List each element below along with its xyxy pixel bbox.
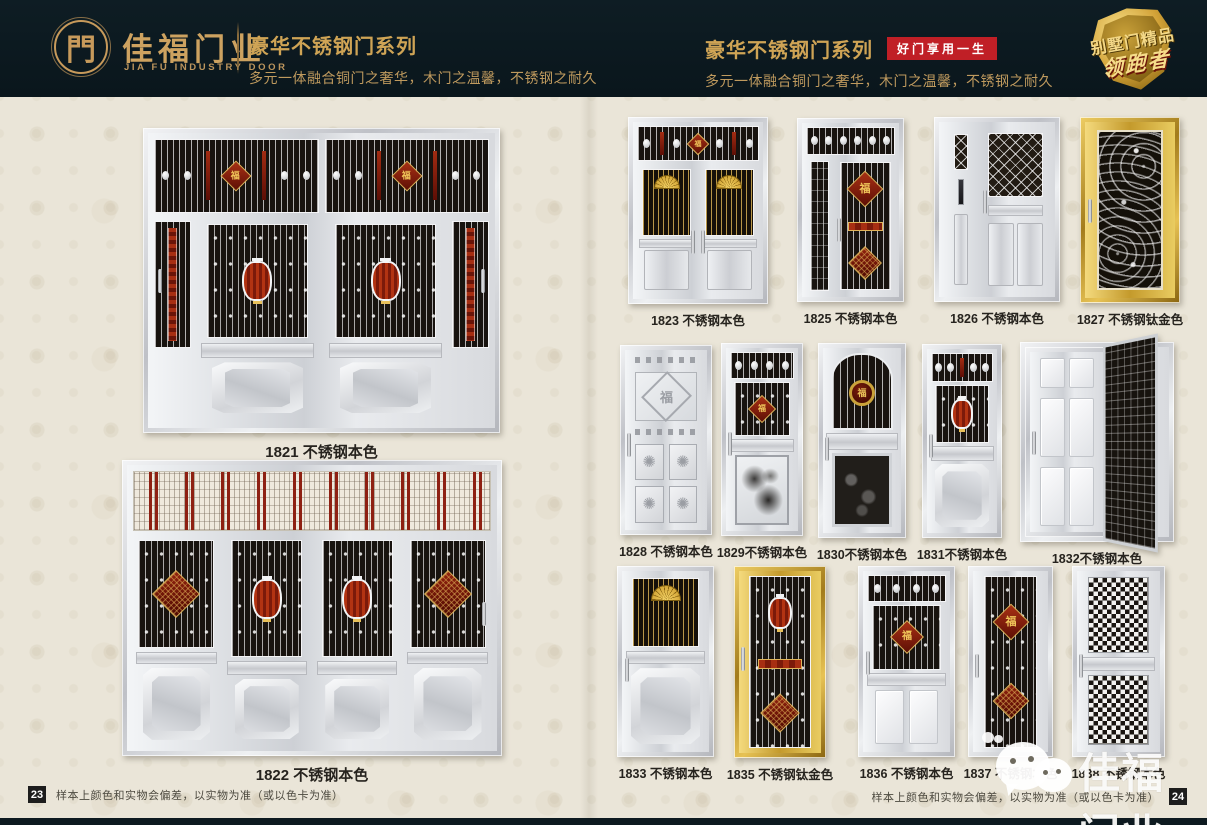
door-graphic bbox=[981, 127, 1050, 292]
door-graphic bbox=[826, 433, 898, 450]
door-graphic bbox=[883, 136, 890, 145]
door-graphic bbox=[322, 540, 393, 657]
door-graphic bbox=[869, 136, 876, 145]
door-graphic bbox=[1077, 571, 1160, 752]
door-graphic bbox=[127, 465, 497, 751]
door-graphic bbox=[746, 139, 753, 148]
door-graphic: 福 bbox=[221, 160, 252, 191]
door-thumb-1821: 福 福 1821 不锈钢本色 bbox=[143, 128, 500, 433]
page-number-left: 23 bbox=[28, 786, 46, 803]
footer-left: 23 样本上颜色和实物会偏差，以实物为准（或以色卡为准） bbox=[28, 786, 344, 803]
door-graphic bbox=[644, 250, 689, 290]
door-graphic bbox=[231, 540, 302, 657]
door-label-1830: 1830不锈钢本色 bbox=[817, 544, 907, 563]
door-graphic bbox=[152, 570, 200, 618]
door-graphic bbox=[832, 453, 891, 527]
door-graphic bbox=[867, 673, 945, 686]
header-left-section: 豪华不锈钢门系列 多元一体融合铜门之奢华，木门之温馨，不锈钢之耐久 bbox=[249, 30, 597, 88]
door-graphic bbox=[1085, 122, 1175, 298]
door-graphic: 福 bbox=[659, 387, 672, 406]
door-label-1828: 1828 不锈钢本色 bbox=[619, 541, 713, 560]
door-graphic bbox=[944, 127, 978, 292]
door-graphic: 福 bbox=[391, 160, 422, 191]
door-thumb-1825: 福 1825 不锈钢本色 bbox=[797, 118, 904, 302]
door-graphic bbox=[138, 540, 214, 649]
door-graphic bbox=[848, 222, 882, 231]
door-image-1837: 福 bbox=[968, 566, 1053, 757]
door-thumb-1838: 1838 不锈钢本色 bbox=[1072, 566, 1165, 757]
door-graphic: 福 bbox=[734, 382, 790, 437]
door-graphic: ✺ bbox=[669, 486, 698, 522]
door-graphic bbox=[452, 171, 459, 180]
door-graphic bbox=[982, 363, 989, 372]
door-graphic bbox=[840, 136, 847, 145]
door-graphic: 福 bbox=[797, 118, 904, 302]
door-graphic bbox=[992, 683, 1029, 720]
door-graphic bbox=[1025, 347, 1169, 537]
door-graphic: 福 bbox=[818, 343, 906, 538]
door-graphic bbox=[1069, 398, 1094, 457]
door-graphic bbox=[728, 432, 732, 456]
door-graphic bbox=[825, 136, 832, 145]
door-graphic: 福 bbox=[858, 566, 955, 757]
door-label-1823: 1823 不锈钢本色 bbox=[651, 310, 745, 329]
door-image-1830: 福 bbox=[818, 343, 906, 538]
logo-glyph: 門 bbox=[66, 25, 96, 69]
door-graphic bbox=[960, 358, 964, 377]
door-graphic bbox=[927, 349, 997, 533]
door-graphic bbox=[810, 161, 829, 291]
door-graphic bbox=[371, 261, 401, 301]
door-graphic: 福 bbox=[633, 122, 763, 299]
door-label-1833: 1833 不锈钢本色 bbox=[619, 763, 713, 782]
door-graphic bbox=[162, 171, 169, 180]
door-graphic bbox=[133, 471, 491, 531]
door-graphic bbox=[324, 218, 447, 422]
door-image-1826 bbox=[934, 117, 1060, 302]
door-graphic bbox=[806, 159, 833, 293]
door-graphic bbox=[922, 344, 1002, 538]
door-graphic bbox=[643, 139, 650, 148]
door-graphic: 福 bbox=[694, 140, 701, 147]
door-graphic bbox=[227, 661, 307, 676]
door-thumb-1832: 1832不锈钢本色 bbox=[1020, 342, 1174, 542]
door-graphic: 福 bbox=[992, 604, 1029, 641]
door-graphic bbox=[410, 540, 486, 649]
door-label-1825: 1825 不锈钢本色 bbox=[804, 308, 898, 327]
door-graphic bbox=[317, 661, 397, 676]
door-graphic bbox=[473, 171, 480, 180]
door-graphic bbox=[1040, 398, 1065, 457]
door-graphic bbox=[1079, 654, 1083, 678]
door-graphic bbox=[932, 584, 939, 593]
door-graphic: 福 bbox=[831, 353, 893, 431]
door-graphic bbox=[635, 357, 697, 363]
series-title-right: 豪华不锈钢门系列 bbox=[705, 34, 873, 63]
door-thumb-1833: 1833 不锈钢本色 bbox=[617, 566, 714, 757]
door-graphic bbox=[848, 246, 882, 280]
door-graphic bbox=[1032, 431, 1036, 455]
door-graphic bbox=[1072, 566, 1165, 757]
door-graphic bbox=[988, 205, 1042, 216]
door-graphic bbox=[1097, 130, 1164, 290]
door-graphic bbox=[913, 584, 920, 593]
door-graphic: 福 bbox=[902, 632, 912, 642]
door-graphic bbox=[622, 571, 709, 752]
door-thumb-1829: 福 1829不锈钢本色 bbox=[721, 343, 803, 536]
door-graphic bbox=[154, 218, 489, 422]
door-image-1821: 福 福 bbox=[143, 128, 500, 433]
door-graphic bbox=[325, 679, 389, 739]
door-graphic bbox=[333, 171, 340, 180]
door-graphic bbox=[929, 434, 933, 458]
door-label-1836: 1836 不锈钢本色 bbox=[860, 763, 954, 782]
door-graphic bbox=[627, 433, 631, 457]
door-graphic bbox=[407, 652, 488, 665]
door-graphic bbox=[716, 175, 742, 189]
door-graphic: 福 bbox=[802, 123, 899, 297]
door-graphic bbox=[741, 462, 782, 518]
door-graphic bbox=[988, 133, 1042, 197]
door-graphic bbox=[1025, 347, 1109, 537]
door-graphic bbox=[983, 190, 987, 214]
door-thumb-1823: 福 1823 不锈钢本色 bbox=[628, 117, 768, 304]
door-graphic bbox=[768, 597, 792, 629]
door-graphic bbox=[1080, 117, 1180, 303]
door-graphic bbox=[452, 218, 489, 422]
door-graphic bbox=[716, 139, 723, 148]
door-graphic bbox=[143, 668, 211, 740]
door-graphic bbox=[939, 122, 1055, 297]
door-graphic bbox=[988, 223, 1014, 285]
door-graphic: ✺✺ bbox=[669, 444, 698, 523]
door-thumb-1835: 1835 不锈钢钛金色 bbox=[734, 566, 826, 758]
door-label-1832: 1832不锈钢本色 bbox=[1052, 548, 1142, 567]
door-graphic bbox=[749, 576, 811, 748]
door-thumb-1827: 1827 不锈钢钛金色 bbox=[1080, 117, 1180, 303]
door-thumb-1836: 福 1836 不锈钢本色 bbox=[858, 566, 955, 757]
door-graphic: 福 bbox=[872, 605, 942, 670]
door-graphic bbox=[707, 250, 752, 290]
door-graphic bbox=[262, 151, 266, 200]
door-image-1825: 福 bbox=[797, 118, 904, 302]
door-graphic: 福 bbox=[806, 159, 895, 293]
door-graphic bbox=[617, 566, 714, 757]
door-graphic bbox=[735, 455, 788, 525]
door-graphic bbox=[944, 127, 1050, 292]
door-graphic: 福 ✺✺ ✺✺ bbox=[620, 345, 712, 535]
door-graphic bbox=[642, 169, 691, 236]
door-graphic: 福 bbox=[836, 159, 895, 293]
door-graphic bbox=[691, 230, 695, 254]
door-thumb-1826: 1826 不锈钢本色 bbox=[934, 117, 1060, 302]
door-graphic: ✺✺ ✺✺ bbox=[635, 444, 697, 523]
door-graphic bbox=[935, 385, 988, 444]
door-graphic bbox=[1069, 358, 1094, 388]
door-graphic: ✺ bbox=[635, 444, 664, 480]
door-image-1836: 福 bbox=[858, 566, 955, 757]
door-graphic bbox=[405, 536, 492, 745]
door-graphic bbox=[702, 239, 757, 248]
door-graphic bbox=[637, 165, 759, 295]
series-tagline-right: 多元一体融合铜门之奢华，木门之温馨，不锈钢之耐久 bbox=[705, 71, 1053, 91]
door-graphic bbox=[700, 165, 760, 295]
door-graphic bbox=[751, 361, 758, 370]
series-tagline-left: 多元一体融合铜门之奢华，木门之温馨，不锈钢之耐久 bbox=[249, 68, 597, 88]
door-graphic: 福 bbox=[154, 139, 319, 213]
door-graphic bbox=[766, 361, 773, 370]
door-graphic: ✺ bbox=[635, 486, 664, 522]
disclaimer-left: 样本上颜色和实物会偏差，以实物为准（或以色卡为准） bbox=[56, 787, 344, 803]
door-graphic bbox=[970, 363, 977, 372]
door-graphic: 福 bbox=[847, 171, 884, 208]
door-graphic: 福 bbox=[637, 126, 759, 161]
door-graphic: 福 bbox=[863, 571, 950, 752]
door-graphic bbox=[329, 343, 442, 357]
door-graphic bbox=[975, 654, 979, 678]
door-graphic bbox=[303, 171, 310, 180]
door-graphic bbox=[632, 578, 698, 647]
door-graphic: ✺✺ bbox=[635, 444, 664, 523]
door-graphic bbox=[154, 218, 191, 422]
gold-shield-emblem: 别墅门精品 领跑者 bbox=[1071, 0, 1197, 103]
door-graphic bbox=[837, 218, 841, 242]
door-label-1821: 1821 不锈钢本色 bbox=[265, 441, 378, 462]
door-graphic bbox=[660, 132, 664, 155]
door-graphic bbox=[481, 269, 485, 293]
door-graphic: 福 bbox=[721, 343, 803, 536]
door-graphic bbox=[874, 584, 881, 593]
door-image-1835 bbox=[734, 566, 826, 758]
door-graphic bbox=[1088, 199, 1092, 223]
watermark-mini-bubbles-icon bbox=[982, 732, 1008, 748]
door-graphic bbox=[806, 127, 895, 155]
door-graphic bbox=[1088, 577, 1149, 653]
door-graphic bbox=[314, 536, 401, 745]
door-graphic: 福 bbox=[849, 380, 875, 406]
door-graphic bbox=[758, 659, 801, 669]
page-gutter-shadow bbox=[580, 97, 598, 818]
door-graphic bbox=[705, 169, 754, 236]
door-graphic bbox=[424, 570, 472, 618]
door-graphic bbox=[631, 668, 701, 744]
header-divider bbox=[237, 22, 239, 74]
door-graphic bbox=[867, 575, 946, 602]
door-label-1835: 1835 不锈钢钛金色 bbox=[727, 764, 833, 783]
door-graphic bbox=[811, 136, 818, 145]
door-graphic bbox=[875, 690, 904, 745]
door-graphic: 福 福 bbox=[148, 133, 495, 428]
door-graphic bbox=[1103, 333, 1158, 552]
door-graphic bbox=[1040, 358, 1094, 526]
door-graphic bbox=[741, 647, 745, 671]
door-graphic bbox=[281, 171, 288, 180]
door-graphic bbox=[1040, 398, 1094, 457]
door-thumb-1830: 福 1830不锈钢本色 bbox=[818, 343, 906, 538]
door-graphic: 福 bbox=[1005, 617, 1016, 628]
door-graphic: 福 福 bbox=[154, 139, 489, 213]
door-graphic bbox=[701, 230, 705, 254]
door-graphic bbox=[342, 579, 372, 619]
door-graphic bbox=[639, 239, 694, 248]
door-graphic bbox=[1025, 347, 1109, 537]
door-graphic: ✺ bbox=[669, 444, 698, 480]
door-graphic bbox=[207, 224, 308, 338]
door-graphic bbox=[730, 439, 795, 452]
door-graphic: 福 bbox=[232, 171, 241, 180]
door-graphic bbox=[1030, 352, 1104, 532]
door-graphic bbox=[1040, 467, 1094, 526]
door-graphic bbox=[224, 536, 311, 745]
door-thumb-1831: 1831不锈钢本色 bbox=[922, 344, 1002, 538]
door-graphic bbox=[947, 363, 954, 372]
door-graphic bbox=[242, 261, 272, 301]
door-graphic bbox=[654, 175, 680, 189]
door-graphic: 福 bbox=[840, 162, 891, 290]
door-graphic bbox=[122, 460, 502, 756]
door-graphic bbox=[673, 139, 680, 148]
door-label-1829: 1829不锈钢本色 bbox=[717, 542, 807, 561]
door-graphic bbox=[954, 134, 969, 170]
header-right-section: 豪华不锈钢门系列 好门享用一生 多元一体融合铜门之奢华，木门之温馨，不锈钢之耐久 bbox=[705, 34, 1053, 91]
bottom-edge-strip bbox=[0, 818, 1207, 825]
door-graphic bbox=[866, 651, 870, 675]
door-graphic bbox=[934, 117, 1060, 302]
door-graphic bbox=[158, 269, 162, 293]
door-graphic bbox=[954, 214, 969, 285]
door-graphic bbox=[212, 362, 303, 413]
door-graphic: 福 bbox=[687, 132, 710, 155]
door-graphic bbox=[377, 151, 381, 200]
watermark-text: 佳福门业 bbox=[1078, 740, 1204, 825]
door-label-1827: 1827 不锈钢钛金色 bbox=[1077, 309, 1183, 328]
door-graphic bbox=[625, 658, 629, 682]
door-graphic bbox=[1040, 358, 1065, 388]
door-graphic bbox=[133, 536, 491, 745]
door-graphic bbox=[734, 566, 826, 758]
door-graphic bbox=[931, 353, 993, 382]
door-graphic: 福 bbox=[823, 348, 901, 533]
door-graphic bbox=[133, 536, 220, 745]
door-graphic bbox=[136, 652, 217, 665]
door-graphic bbox=[201, 343, 314, 357]
door-graphic bbox=[433, 151, 437, 200]
door-graphic bbox=[1082, 657, 1155, 671]
door-label-1831: 1831不锈钢本色 bbox=[917, 544, 1007, 563]
header-bar: 門 佳福门业 JIA FU INDUSTRY DOOR 豪华不锈钢门系列 多元一… bbox=[0, 0, 1207, 97]
door-graphic: 福 bbox=[635, 372, 697, 422]
door-graphic bbox=[651, 585, 681, 601]
door-graphic: 福 bbox=[860, 184, 871, 195]
door-graphic bbox=[1040, 358, 1094, 388]
door-graphic: 福 bbox=[748, 395, 776, 423]
door-graphic bbox=[466, 228, 475, 341]
door-graphic bbox=[951, 399, 973, 429]
door-graphic: 福 bbox=[890, 620, 924, 654]
door-graphic bbox=[931, 446, 994, 461]
door-graphic bbox=[1040, 467, 1065, 526]
door-graphic: 福 bbox=[973, 571, 1048, 752]
door-graphic bbox=[252, 579, 282, 619]
door-graphic bbox=[935, 464, 990, 528]
door-graphic: 福 ✺✺ ✺✺ bbox=[625, 350, 707, 530]
door-image-1828: 福 ✺✺ ✺✺ bbox=[620, 345, 712, 535]
door-graphic: 福 bbox=[402, 171, 411, 180]
door-graphic bbox=[732, 132, 736, 155]
door-graphic bbox=[168, 228, 177, 341]
door-image-1831 bbox=[922, 344, 1002, 538]
door-image-1827 bbox=[1080, 117, 1180, 303]
door-graphic bbox=[196, 218, 319, 422]
door-graphic bbox=[1020, 342, 1174, 542]
door-graphic bbox=[760, 693, 800, 733]
door-graphic bbox=[414, 668, 482, 740]
door-graphic bbox=[335, 224, 436, 338]
door-image-1833 bbox=[617, 566, 714, 757]
door-graphic: 福 bbox=[628, 117, 768, 304]
watermark-chat-bubble-small-icon bbox=[1034, 758, 1072, 792]
door-thumb-1822: 1822 不锈钢本色 bbox=[122, 460, 502, 756]
door-graphic bbox=[184, 171, 191, 180]
company-logo-icon: 門 bbox=[54, 20, 108, 74]
door-label-1822: 1822 不锈钢本色 bbox=[256, 764, 369, 785]
door-graphic bbox=[482, 602, 486, 626]
door-graphic bbox=[735, 361, 742, 370]
door-graphic: 福 bbox=[325, 139, 490, 213]
door-graphic bbox=[626, 651, 704, 664]
door-graphic bbox=[909, 690, 938, 745]
door-graphic bbox=[637, 165, 697, 295]
door-image-1822 bbox=[122, 460, 502, 756]
door-graphic bbox=[893, 584, 900, 593]
door-graphic: 福 福 bbox=[143, 128, 500, 433]
door-graphic bbox=[988, 223, 1042, 285]
door-image-1829: 福 bbox=[721, 343, 803, 536]
door-thumb-1828: 福 ✺✺ ✺✺ 1828 不锈钢本色 bbox=[620, 345, 712, 535]
slogan-badge: 好门享用一生 bbox=[887, 37, 997, 60]
door-label-1826: 1826 不锈钢本色 bbox=[950, 308, 1044, 327]
door-graphic bbox=[1017, 223, 1043, 285]
door-graphic bbox=[635, 429, 697, 435]
series-title-left: 豪华不锈钢门系列 bbox=[249, 30, 597, 59]
door-graphic bbox=[825, 437, 829, 461]
door-graphic bbox=[782, 361, 789, 370]
door-graphic bbox=[355, 171, 362, 180]
door-graphic bbox=[854, 136, 861, 145]
door-graphic bbox=[206, 151, 210, 200]
door-graphic: 福 ✺✺ ✺✺ bbox=[635, 357, 697, 522]
door-graphic bbox=[739, 571, 821, 753]
door-thumb-1837: 福 1837 不锈钢本色 bbox=[968, 566, 1053, 757]
door-graphic: 福 bbox=[726, 348, 798, 531]
door-graphic: 福 bbox=[758, 405, 766, 413]
door-graphic bbox=[340, 362, 431, 413]
door-graphic: 福 bbox=[984, 576, 1037, 748]
door-graphic bbox=[875, 690, 938, 745]
door-graphic bbox=[235, 679, 299, 739]
door-image-1838 bbox=[1072, 566, 1165, 757]
door-graphic bbox=[730, 352, 794, 379]
door-graphic bbox=[935, 363, 942, 372]
door-image-1832 bbox=[1020, 342, 1174, 542]
door-image-1823: 福 bbox=[628, 117, 768, 304]
door-graphic bbox=[958, 179, 965, 205]
door-graphic bbox=[1069, 467, 1094, 526]
door-graphic: 福 bbox=[641, 371, 692, 422]
door-graphic: 福 bbox=[968, 566, 1053, 757]
wechat-watermark: 佳福门业 bbox=[982, 730, 1204, 812]
